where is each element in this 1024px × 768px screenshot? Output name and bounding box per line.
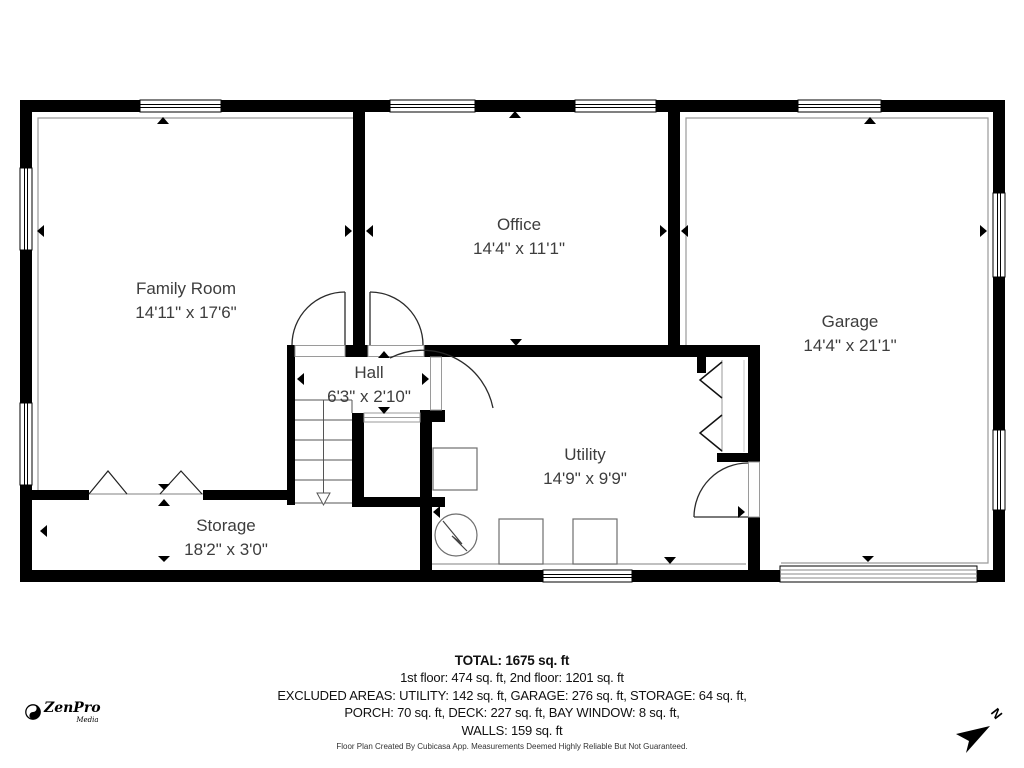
room-label-garage: Garage 14'4" x 21'1" [803,310,896,358]
room-name: Garage [803,310,896,334]
summary-total: TOTAL: 1675 sq. ft [0,652,1024,669]
floor-plan-page: Family Room 14'11" x 17'6" Office 14'4" … [0,0,1024,768]
summary-excluded-1: EXCLUDED AREAS: UTILITY: 142 sq. ft, GAR… [0,687,1024,704]
wall-family-office [353,100,365,357]
wall-utility-garage-lower [748,517,760,570]
room-label-hall: Hall 6'3" x 2'10" [327,361,411,409]
wall-utility-garage-upper [748,357,760,462]
room-dimensions: 14'9" x 9'9" [543,467,627,491]
window-top-3 [575,100,656,112]
washer [499,519,543,564]
summary-excluded-3: WALLS: 159 sq. ft [0,722,1024,739]
wall-hall-top [287,345,760,357]
room-dimensions: 18'2" x 3'0" [184,538,268,562]
window-top-2 [390,100,475,112]
room-dimensions: 6'3" x 2'10" [327,385,411,409]
room-name: Office [473,213,565,237]
marker-wallA-left [366,225,373,237]
marker-office-up [509,111,521,118]
wall-hall-left [287,345,295,505]
wall-family-storage-right [203,490,295,500]
water-heater [435,514,477,556]
room-dimensions: 14'4" x 21'1" [803,334,896,358]
marker-wallB-right [660,225,667,237]
threshold-utility-garage [749,462,760,517]
room-name: Family Room [135,277,236,301]
marker-storage-left [40,525,47,537]
window-left-1 [20,168,32,250]
porch-opening-symbols [89,471,202,494]
marker-storage-down [158,556,170,562]
zenpro-media-logo: ZenPro Media [25,702,101,727]
disclaimer-text: Floor Plan Created By Cubicasa App. Meas… [0,742,1024,751]
marker-wallB-left [681,225,688,237]
garage-door [780,566,977,582]
stairs [295,400,352,505]
room-label-family-room: Family Room 14'11" x 17'6" [135,277,236,325]
wall-office-garage [668,100,680,357]
window-top-4 [798,100,881,112]
area-summary: TOTAL: 1675 sq. ft 1st floor: 474 sq. ft… [0,652,1024,739]
marker-hall-right [422,373,429,385]
dryer [573,519,617,564]
room-label-utility: Utility 14'9" x 9'9" [543,443,627,491]
marker-storage-top-down [158,484,170,490]
marker-storage-top-up [158,499,170,506]
window-right-1 [993,193,1005,277]
window-left-2 [20,403,32,485]
closet-sliding-door [364,413,420,422]
wall-closet-left [352,413,364,505]
window-right-2 [993,430,1005,510]
marker-utility-right [738,506,745,518]
marker-hall-left [297,373,304,385]
wall-family-storage-left [20,490,89,500]
door-family-room [292,292,345,345]
wall-storage-utility [420,413,432,570]
fixture-box [433,448,477,490]
window-bottom-utility [543,570,632,582]
room-name: Utility [543,443,627,467]
room-label-office: Office 14'4" x 11'1" [473,213,565,261]
summary-floors: 1st floor: 474 sq. ft, 2nd floor: 1201 s… [0,669,1024,686]
marker-garage-right [980,225,987,237]
room-name: Hall [327,361,411,385]
accordion-closet-doors [700,360,744,452]
room-name: Storage [184,514,268,538]
wall-closet-jamb [697,357,706,373]
room-label-storage: Storage 18'2" x 3'0" [184,514,268,562]
summary-excluded-2: PORCH: 70 sq. ft, DECK: 227 sq. ft, BAY … [0,704,1024,721]
threshold-family-hall [295,346,345,357]
interior-walls [20,100,760,570]
wall-closet-stub [717,453,760,462]
door-office [370,292,423,345]
marker-wallA-right [345,225,352,237]
marker-utility-left [433,506,440,518]
room-dimensions: 14'11" x 17'6" [135,301,236,325]
room-dimensions: 14'4" x 11'1" [473,237,565,261]
marker-utility-down [664,557,676,564]
marker-garage-down [862,556,874,562]
yin-yang-icon [25,704,41,720]
marker-office-down [510,339,522,346]
window-top-1 [140,100,221,112]
threshold-hall-utility [431,357,442,410]
